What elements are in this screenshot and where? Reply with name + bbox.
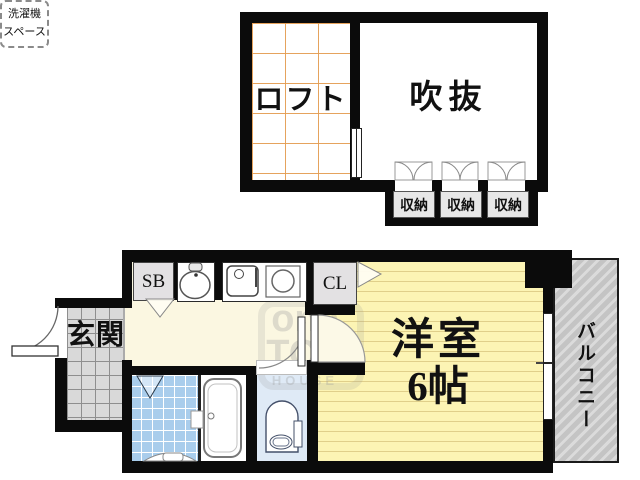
fixtures-layer	[0, 0, 640, 480]
toilet-icon	[266, 401, 302, 452]
balcony-label: バルコニー	[574, 316, 594, 436]
western-room-label-line2: 6帖	[343, 365, 533, 408]
loft-room-label: ロフト	[251, 85, 351, 115]
shoebox-door-icon	[146, 299, 174, 317]
kitchen-sink-icon	[227, 266, 258, 296]
western-room-label: 洋室 6帖	[343, 318, 533, 408]
void-room-label: 吹抜	[360, 81, 537, 116]
bathtub-icon	[191, 379, 241, 457]
loft-divider-window-mullion	[356, 129, 357, 177]
toilet-door-icon	[259, 317, 305, 368]
storage-door-icon	[395, 162, 525, 180]
wash-basin-icon	[180, 263, 210, 299]
bath-counter-icon	[144, 453, 196, 461]
entrance-door-icon	[12, 306, 58, 356]
floor-plan: 収納 収納 収納 ロフト 吹抜 one TOP HOUSE SB	[0, 0, 640, 480]
western-room-label-line1: 洋室	[343, 318, 533, 363]
stove-burner-icon	[266, 266, 300, 297]
bathroom-door-icon	[137, 376, 163, 398]
closet-door-icon	[358, 262, 381, 287]
entrance-label: 玄関	[62, 321, 130, 350]
